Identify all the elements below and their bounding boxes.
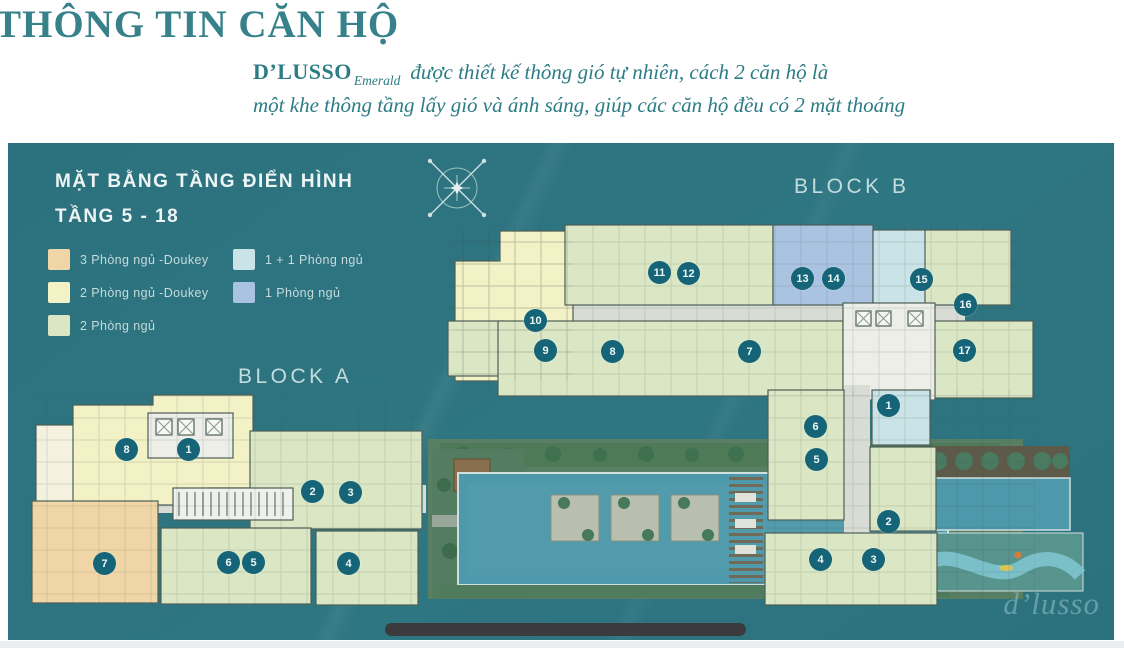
legend-swatch xyxy=(233,249,255,270)
legend-label: 1 Phòng ngủ xyxy=(265,286,340,300)
unit-badge: 6 xyxy=(217,551,240,574)
page-title: THÔNG TIN CĂN HỘ xyxy=(0,2,399,47)
legend-swatch xyxy=(48,249,70,270)
intro-line-1: D’LUSSOEmeraldđược thiết kế thông gió tự… xyxy=(253,56,993,90)
block-b-label: BLOCK B xyxy=(794,175,910,199)
page: THÔNG TIN CĂN HỘ D’LUSSOEmeraldđược thiế… xyxy=(0,0,1124,648)
unit-badge: 7 xyxy=(738,340,761,363)
intro-text-2: một khe thông tầng lấy gió và ánh sáng, … xyxy=(253,93,905,117)
horizontal-scrollbar[interactable] xyxy=(385,623,746,636)
intro-line-2: một khe thông tầng lấy gió và ánh sáng, … xyxy=(253,90,993,121)
page-bottom-edge xyxy=(0,641,1124,648)
legend-item: 2 Phòng ngủ -Doukey xyxy=(48,276,233,309)
legend-swatch xyxy=(48,315,70,336)
unit-badge: 8 xyxy=(115,438,138,461)
unit-badge: 2 xyxy=(877,510,900,533)
unit-badge: 14 xyxy=(822,267,845,290)
intro-text-1: được thiết kế thông gió tự nhiên, cách 2… xyxy=(410,60,828,84)
unit-badge: 1 xyxy=(877,394,900,417)
unit-badge: 7 xyxy=(93,552,116,575)
block-a-label: BLOCK A xyxy=(238,365,352,389)
legend-item: 1 + 1 Phòng ngủ xyxy=(233,243,363,276)
unit-badge: 2 xyxy=(301,480,324,503)
legend-label: 2 Phòng ngủ -Doukey xyxy=(80,286,209,300)
unit-badge: 16 xyxy=(954,293,977,316)
brand-subname: Emerald xyxy=(354,73,401,88)
unit-badge: 13 xyxy=(791,267,814,290)
plan-floors: TẦNG 5 - 18 xyxy=(55,206,179,228)
legend-item: 3 Phòng ngủ -Doukey xyxy=(48,243,233,276)
legend-item: 1 Phòng ngủ xyxy=(233,276,363,309)
unit-badge: 3 xyxy=(339,481,362,504)
unit-badge: 5 xyxy=(805,448,828,471)
unit-badge: 3 xyxy=(862,548,885,571)
plan-heading: MẶT BẰNG TẦNG ĐIỂN HÌNH xyxy=(55,171,353,193)
dlusso-logo: d’lusso xyxy=(1003,586,1100,622)
unit-badge: 4 xyxy=(809,548,832,571)
legend: 3 Phòng ngủ -Doukey2 Phòng ngủ -Doukey2 … xyxy=(48,243,363,342)
unit-badge: 5 xyxy=(242,551,265,574)
unit-badge: 1 xyxy=(177,438,200,461)
unit-badge: 9 xyxy=(534,339,557,362)
legend-swatch xyxy=(48,282,70,303)
unit-badge: 11 xyxy=(648,261,671,284)
legend-label: 1 + 1 Phòng ngủ xyxy=(265,253,363,267)
intro-paragraph: D’LUSSOEmeraldđược thiết kế thông gió tự… xyxy=(253,56,993,121)
unit-badge: 17 xyxy=(953,339,976,362)
legend-swatch xyxy=(233,282,255,303)
legend-label: 3 Phòng ngủ -Doukey xyxy=(80,253,209,267)
legend-item: 2 Phòng ngủ xyxy=(48,309,233,342)
unit-badge: 6 xyxy=(804,415,827,438)
brand-name: D’LUSSO xyxy=(253,59,352,84)
unit-badge: 10 xyxy=(524,309,547,332)
unit-badge: 12 xyxy=(677,262,700,285)
floorplan-panel: 812376541011121314151698717165243 MẶT BẰ… xyxy=(8,143,1114,640)
unit-badge: 4 xyxy=(337,552,360,575)
legend-label: 2 Phòng ngủ xyxy=(80,319,155,333)
unit-badge: 15 xyxy=(910,268,933,291)
unit-badge: 8 xyxy=(601,340,624,363)
